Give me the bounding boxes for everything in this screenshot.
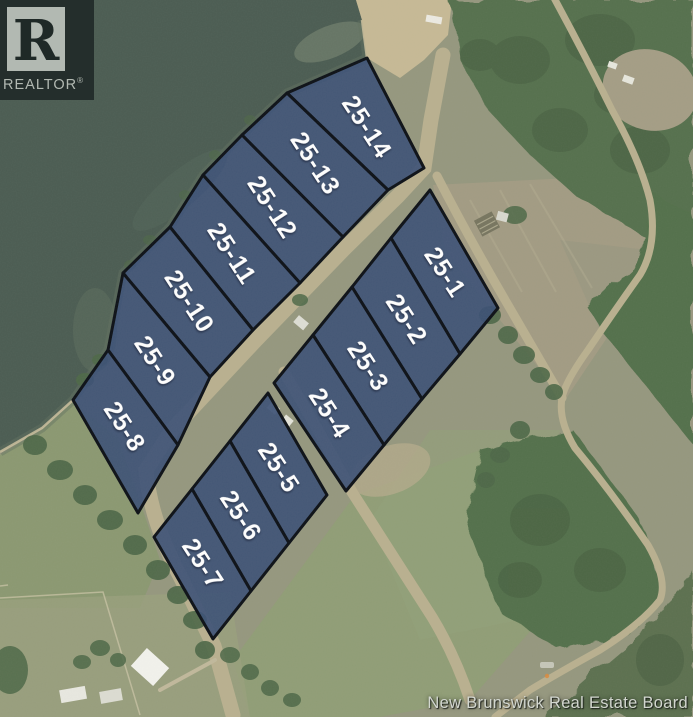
realtor-wordmark: REALTOR®: [3, 76, 93, 93]
aerial-lot-map: 25-1425-1325-1225-1125-1025-925-825-125-…: [0, 0, 693, 717]
realtor-r-mark: R: [7, 7, 65, 71]
realtor-logo: R REALTOR®: [0, 0, 94, 100]
attribution-text: New Brunswick Real Estate Board: [427, 694, 688, 713]
satellite-map-canvas: 25-1425-1325-1225-1125-1025-925-825-125-…: [0, 0, 693, 717]
photo-grain-overlay: [0, 0, 693, 717]
registered-trademark-symbol: ®: [77, 76, 83, 85]
realtor-r-letter: R: [13, 13, 60, 69]
